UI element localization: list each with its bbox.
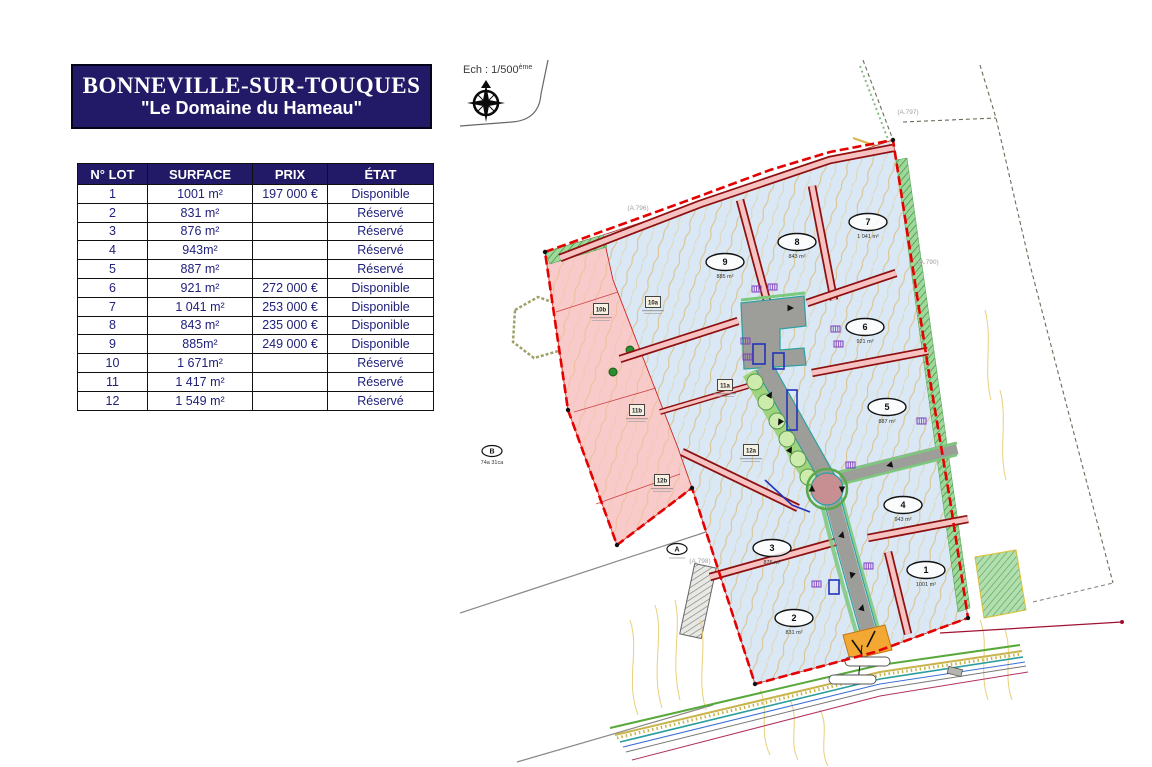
table-cell-prix bbox=[253, 391, 328, 410]
table-cell-lot: 9 bbox=[78, 335, 148, 354]
svg-text:943 m²: 943 m² bbox=[894, 517, 911, 523]
col-header-prix: PRIX bbox=[253, 164, 328, 185]
title-box: BONNEVILLE-SUR-TOUQUES "Le Domaine du Ha… bbox=[71, 64, 432, 129]
table-row: 121 549 m²Réservé bbox=[78, 391, 434, 410]
table-cell-prix bbox=[253, 241, 328, 260]
table-cell-lot: 10 bbox=[78, 354, 148, 373]
table-cell-etat: Réservé bbox=[328, 372, 434, 391]
hedge-ticks bbox=[860, 66, 889, 142]
table-cell-surface: 1 417 m² bbox=[148, 372, 253, 391]
table-cell-surface: 1 671m² bbox=[148, 354, 253, 373]
table-cell-prix bbox=[253, 354, 328, 373]
table-cell-surface: 831 m² bbox=[148, 203, 253, 222]
table-cell-prix: 272 000 € bbox=[253, 278, 328, 297]
table-cell-etat: Disponible bbox=[328, 316, 434, 335]
table-cell-lot: 5 bbox=[78, 260, 148, 279]
svg-text:887 m²: 887 m² bbox=[878, 419, 895, 425]
table-row: 9885m²249 000 €Disponible bbox=[78, 335, 434, 354]
table-cell-etat: Disponible bbox=[328, 278, 434, 297]
table-cell-etat: Disponible bbox=[328, 185, 434, 204]
site-plan-map: Ech : 1/500ème bbox=[460, 60, 1152, 767]
table-cell-surface: 843 m² bbox=[148, 316, 253, 335]
svg-text:10a: 10a bbox=[648, 301, 659, 307]
table-cell-lot: 11 bbox=[78, 372, 148, 391]
table-row: 4943m²Réservé bbox=[78, 241, 434, 260]
parcel-ref-label: (A.798) bbox=[689, 558, 710, 565]
table-cell-lot: 2 bbox=[78, 203, 148, 222]
svg-text:2: 2 bbox=[791, 613, 796, 623]
table-row: 101 671m²Réservé bbox=[78, 354, 434, 373]
table-row: 11001 m²197 000 €Disponible bbox=[78, 185, 434, 204]
svg-text:10b: 10b bbox=[596, 308, 607, 314]
parcel-ref-label: (A.797) bbox=[897, 109, 918, 116]
table-cell-etat: Réservé bbox=[328, 354, 434, 373]
col-header-lot: N° LOT bbox=[78, 164, 148, 185]
svg-text:5: 5 bbox=[884, 402, 889, 412]
table-cell-lot: 6 bbox=[78, 278, 148, 297]
svg-text:9: 9 bbox=[722, 257, 727, 267]
culvert-marker bbox=[947, 666, 962, 676]
table-cell-surface: 887 m² bbox=[148, 260, 253, 279]
scale-label: Ech : 1/500ème bbox=[463, 64, 532, 76]
table-cell-etat: Réservé bbox=[328, 391, 434, 410]
svg-text:B: B bbox=[489, 449, 494, 456]
col-header-surface: SURFACE bbox=[148, 164, 253, 185]
compass-rose-icon bbox=[467, 80, 505, 122]
table-cell-surface: 876 m² bbox=[148, 222, 253, 241]
parcel-ref-label: (A.790) bbox=[917, 259, 938, 266]
table-cell-etat: Réservé bbox=[328, 241, 434, 260]
table-cell-etat: Disponible bbox=[328, 297, 434, 316]
table-cell-lot: 12 bbox=[78, 391, 148, 410]
svg-text:12b: 12b bbox=[657, 479, 668, 485]
table-cell-lot: 1 bbox=[78, 185, 148, 204]
parcel-ref-label: (A.796) bbox=[627, 205, 648, 212]
table-row: 8843 m²235 000 €Disponible bbox=[78, 316, 434, 335]
table-cell-lot: 8 bbox=[78, 316, 148, 335]
table-row: 5887 m²Réservé bbox=[78, 260, 434, 279]
table-cell-lot: 3 bbox=[78, 222, 148, 241]
table-cell-prix bbox=[253, 372, 328, 391]
survey-point: B74a 31ca bbox=[481, 446, 505, 467]
svg-text:1 041 m²: 1 041 m² bbox=[857, 234, 879, 240]
table-cell-surface: 1 549 m² bbox=[148, 391, 253, 410]
table-cell-etat: Réservé bbox=[328, 203, 434, 222]
page-title: BONNEVILLE-SUR-TOUQUES bbox=[83, 74, 421, 98]
table-cell-lot: 7 bbox=[78, 297, 148, 316]
table-cell-prix: 235 000 € bbox=[253, 316, 328, 335]
table-cell-etat: Disponible bbox=[328, 335, 434, 354]
lot-table-body: 11001 m²197 000 €Disponible2831 m²Réserv… bbox=[78, 185, 434, 411]
table-cell-surface: 885m² bbox=[148, 335, 253, 354]
table-cell-lot: 4 bbox=[78, 241, 148, 260]
table-cell-surface: 1 041 m² bbox=[148, 297, 253, 316]
table-cell-etat: Réservé bbox=[328, 260, 434, 279]
svg-text:11a: 11a bbox=[720, 384, 730, 390]
table-row: 111 417 m²Réservé bbox=[78, 372, 434, 391]
table-cell-prix: 197 000 € bbox=[253, 185, 328, 204]
table-row: 3876 m²Réservé bbox=[78, 222, 434, 241]
table-row: 6921 m²272 000 €Disponible bbox=[78, 278, 434, 297]
table-row: 71 041 m²253 000 €Disponible bbox=[78, 297, 434, 316]
page: BONNEVILLE-SUR-TOUQUES "Le Domaine du Ha… bbox=[0, 0, 1152, 767]
table-cell-surface: 943m² bbox=[148, 241, 253, 260]
table-cell-prix: 253 000 € bbox=[253, 297, 328, 316]
table-cell-etat: Réservé bbox=[328, 222, 434, 241]
svg-text:4: 4 bbox=[900, 500, 905, 510]
table-cell-surface: 921 m² bbox=[148, 278, 253, 297]
svg-text:1001 m²: 1001 m² bbox=[916, 582, 936, 588]
svg-text:831 m²: 831 m² bbox=[785, 630, 802, 636]
verge-patch bbox=[975, 550, 1026, 618]
svg-text:12a: 12a bbox=[746, 449, 757, 455]
col-header-etat: ÉTAT bbox=[328, 164, 434, 185]
lot-table: N° LOT SURFACE PRIX ÉTAT 11001 m²197 000… bbox=[77, 163, 434, 411]
survey-point: A bbox=[667, 544, 687, 559]
svg-text:A: A bbox=[674, 547, 679, 554]
page-subtitle: "Le Domaine du Hameau" bbox=[141, 99, 362, 119]
svg-text:8: 8 bbox=[794, 237, 799, 247]
table-cell-prix bbox=[253, 260, 328, 279]
table-cell-prix bbox=[253, 203, 328, 222]
svg-text:921 m²: 921 m² bbox=[856, 339, 873, 345]
svg-text:74a 31ca: 74a 31ca bbox=[481, 460, 505, 466]
table-cell-prix: 249 000 € bbox=[253, 335, 328, 354]
svg-text:885 m²: 885 m² bbox=[716, 274, 733, 280]
svg-text:3: 3 bbox=[769, 543, 774, 553]
svg-text:11b: 11b bbox=[632, 409, 642, 415]
svg-text:876 m²: 876 m² bbox=[763, 560, 780, 566]
table-row: 2831 m²Réservé bbox=[78, 203, 434, 222]
table-cell-surface: 1001 m² bbox=[148, 185, 253, 204]
svg-text:1: 1 bbox=[923, 565, 928, 575]
svg-text:6: 6 bbox=[862, 322, 867, 332]
svg-text:7: 7 bbox=[865, 217, 870, 227]
svg-text:843 m²: 843 m² bbox=[788, 254, 805, 260]
table-cell-prix bbox=[253, 222, 328, 241]
table-header-row: N° LOT SURFACE PRIX ÉTAT bbox=[78, 164, 434, 185]
